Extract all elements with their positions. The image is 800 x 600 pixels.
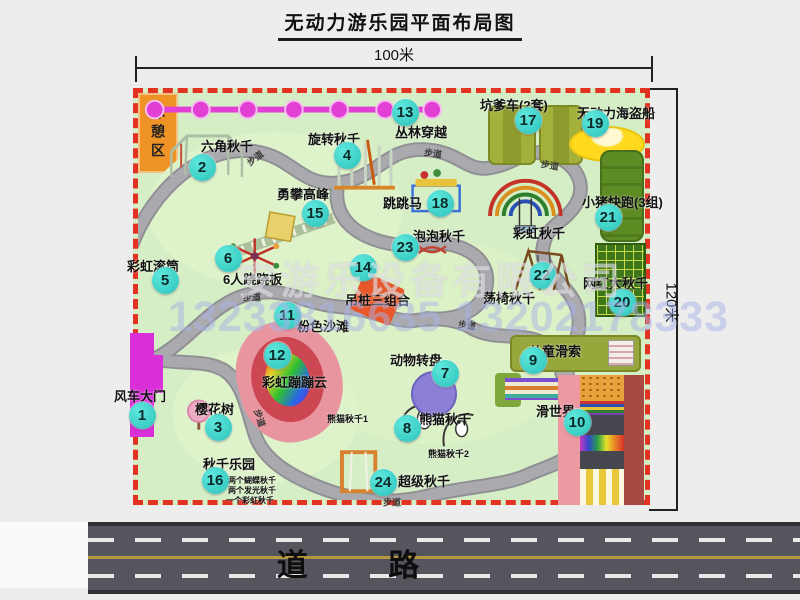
marker-20: 20 — [609, 289, 636, 316]
dimension-label-width: 100米 — [136, 44, 652, 65]
park-plan-page: { "title": "无动力游乐园平面布局图", "dims": { "top… — [0, 0, 800, 600]
facility-label: 小猪快跑(3组) — [582, 192, 663, 211]
slide-stripe-yellow — [580, 469, 624, 505]
dimension-line-top — [136, 67, 652, 69]
footpath-label: 步道 — [383, 496, 401, 509]
facility-label: 彩虹秋千 — [513, 223, 565, 242]
marker-7: 7 — [432, 360, 459, 387]
slide-center-section — [580, 375, 624, 505]
marker-14: 14 — [350, 254, 377, 281]
footpath-label: 步道 — [457, 317, 477, 332]
dimension-tick-right-top — [649, 88, 678, 90]
dimension-label-height: 120米 — [662, 282, 683, 322]
marker-16: 16 — [202, 467, 229, 494]
marker-4: 4 — [334, 142, 361, 169]
marker-24: 24 — [370, 469, 397, 496]
facility-label: 超级秋千 — [398, 471, 450, 490]
marker-9: 9 — [520, 347, 547, 374]
road: 道 路 — [88, 522, 800, 594]
marker-1: 1 — [129, 402, 156, 429]
slide-world-tower — [558, 375, 644, 505]
marker-2: 2 — [189, 154, 216, 181]
dimension-tick-right-bottom — [649, 509, 678, 511]
footpath-label: 步道 — [540, 157, 560, 173]
marker-17: 17 — [515, 107, 542, 134]
facility-label: 一个彩虹秋千 — [226, 495, 274, 506]
marker-6: 6 — [215, 245, 242, 272]
slide-stripe-dots — [580, 375, 624, 401]
slide-stripe-dark-2 — [580, 451, 624, 469]
marker-10: 10 — [564, 409, 591, 436]
park-map: 休憩区 123456789101112131415161718192021222… — [133, 88, 650, 505]
facility-label: 6人跷跷板 — [223, 269, 282, 288]
page-title: 无动力游乐园平面布局图 — [0, 8, 800, 41]
facility-label: 熊猫秋千2 — [428, 447, 469, 460]
facility-label: 荡椅秋千 — [483, 288, 535, 307]
facility-label: 勇攀高峰 — [277, 184, 329, 203]
footpath-label: 步道 — [243, 291, 261, 304]
slide-pink-section — [558, 375, 580, 505]
marker-18: 18 — [427, 190, 454, 217]
slide-red-section — [624, 375, 644, 505]
marker-5: 5 — [152, 267, 179, 294]
marker-23: 23 — [392, 234, 419, 261]
footpath-label: 步道 — [423, 145, 443, 160]
marker-12: 12 — [264, 342, 291, 369]
facility-label: 粉色沙滩 — [297, 316, 349, 335]
facility-label: 熊猫秋千1 — [327, 412, 368, 425]
marker-21: 21 — [595, 204, 622, 231]
zipline-platform-icon — [608, 340, 634, 366]
facility-label: 网红大秋千 — [583, 273, 648, 292]
facility-label: 泡泡秋千 — [413, 226, 465, 245]
marker-11: 11 — [274, 302, 301, 329]
facility-label: 跳跳马 — [383, 193, 422, 212]
marker-13: 13 — [392, 99, 419, 126]
marker-15: 15 — [302, 200, 329, 227]
facility-label: 熊猫秋千 — [419, 409, 471, 428]
facility-label: 彩虹蹦蹦云 — [262, 372, 327, 391]
marker-19: 19 — [582, 110, 609, 137]
facility-label: 吊桩三组合 — [345, 290, 410, 309]
marker-3: 3 — [205, 414, 232, 441]
facility-label: 六角秋千 — [201, 136, 253, 155]
marker-8: 8 — [394, 415, 421, 442]
slide-stripe-rainbow — [580, 435, 624, 451]
marker-22: 22 — [529, 262, 556, 289]
road-label: 道 路 — [10, 540, 722, 585]
